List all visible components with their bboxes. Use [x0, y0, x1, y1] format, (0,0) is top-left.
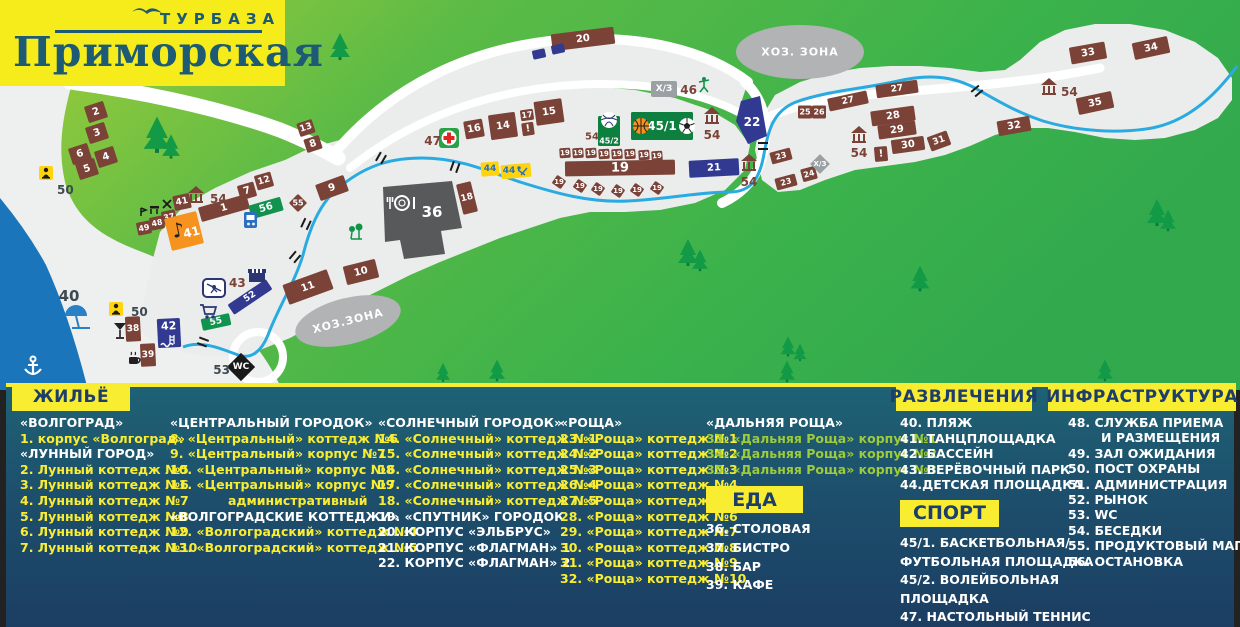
- svg-text:45/1: 45/1: [647, 119, 676, 133]
- svg-text:19: 19: [613, 187, 623, 195]
- legend-header-entertainment: РАЗВЛЕЧЕНИЯ: [896, 383, 1032, 411]
- building-19: 19: [624, 149, 636, 160]
- building-!: !: [874, 146, 888, 162]
- text40-icon: 40: [59, 287, 80, 305]
- building-16: 16: [463, 118, 485, 139]
- kids-icon: 44: [480, 161, 499, 177]
- legend-item: 44.ДЕТСКАЯ ПЛОЩАДКА: [900, 477, 1093, 493]
- svg-text:27: 27: [890, 83, 904, 95]
- svg-text:50: 50: [57, 183, 74, 197]
- svg-text:ХОЗ. ЗОНА: ХОЗ. ЗОНА: [761, 46, 839, 59]
- svg-text:42: 42: [161, 319, 177, 333]
- legend-item: 43. ВЕРЁВОЧНЫЙ ПАРК: [900, 462, 1093, 478]
- hozlabel-icon: Х/З: [651, 81, 677, 97]
- legend-item: 54. БЕСЕДКИ: [1068, 523, 1240, 538]
- svg-text:19: 19: [560, 149, 570, 158]
- legend-column-7: 48. СЛУЖБА ПРИЕМАИ РАЗМЕЩЕНИЯ49. ЗАЛ ОЖИ…: [1068, 415, 1240, 569]
- svg-text:Х/З: Х/З: [814, 160, 827, 168]
- svg-text:19: 19: [625, 150, 635, 159]
- legend-item: 51. АДМИНИСТРАЦИЯ: [1068, 477, 1240, 492]
- svg-text:14: 14: [495, 120, 510, 133]
- svg-text:Х/З: Х/З: [656, 84, 673, 94]
- svg-text:WC: WC: [233, 362, 250, 372]
- legend-header-infrastructure: ИНФРАСТРУКТУРА: [1048, 383, 1236, 411]
- svg-text:54: 54: [704, 128, 721, 142]
- svg-text:54: 54: [210, 192, 227, 206]
- svg-text:19: 19: [632, 186, 642, 194]
- building-19: 19: [585, 148, 597, 159]
- svg-text:19: 19: [612, 150, 622, 159]
- market-icon: [248, 269, 266, 282]
- svg-text:46: 46: [680, 83, 697, 97]
- building-42: 42: [157, 318, 181, 348]
- svg-text:19: 19: [639, 151, 649, 160]
- svg-text:19: 19: [652, 184, 662, 192]
- svg-text:50: 50: [131, 305, 148, 319]
- soccer-icon: [679, 118, 695, 134]
- guard-icon: [39, 166, 53, 180]
- building-19: 19: [572, 148, 584, 159]
- svg-text:29: 29: [889, 124, 904, 137]
- svg-text:55: 55: [292, 199, 304, 208]
- svg-text:28: 28: [885, 110, 900, 123]
- svg-text:!: !: [878, 148, 884, 159]
- svg-text:19: 19: [652, 152, 662, 161]
- svg-text:17: 17: [521, 110, 533, 120]
- building-25: 25: [798, 106, 812, 119]
- legend-item: 53. WC: [1068, 507, 1240, 522]
- cross-icon: [439, 128, 459, 148]
- building-17: 17: [520, 109, 534, 122]
- svg-text:36: 36: [422, 203, 443, 221]
- legend-item: 49. ЗАЛ ОЖИДАНИЯ: [1068, 446, 1240, 461]
- legend-box-food: ЕДА: [706, 486, 803, 513]
- volleyball-icon: [601, 112, 617, 128]
- legend-item: 52. РЫНОК: [1068, 492, 1240, 507]
- legend-item: 48. СЛУЖБА ПРИЕМА: [1068, 415, 1240, 430]
- building-26: 26: [812, 106, 826, 119]
- svg-text:54: 54: [851, 146, 868, 160]
- svg-text:53: 53: [213, 363, 230, 377]
- svg-text:38: 38: [126, 324, 139, 335]
- svg-text:20: 20: [575, 33, 590, 46]
- building-19: 19: [651, 151, 663, 162]
- building-19: 19: [638, 150, 650, 161]
- building-21: 21: [689, 158, 740, 178]
- logo: ТУРБАЗА Приморская: [0, 0, 285, 86]
- building-19: 19: [559, 148, 571, 159]
- legend-item: 50. ПОСТ ОХРАНЫ: [1068, 461, 1240, 476]
- svg-text:22: 22: [744, 115, 761, 129]
- building-14: 14: [488, 112, 518, 141]
- building-19: 19: [598, 149, 610, 160]
- svg-text:39: 39: [141, 350, 154, 361]
- svg-text:40: 40: [59, 287, 80, 305]
- seagull-icon: [130, 3, 164, 17]
- legend-item: 45/1. БАСКЕТБОЛЬНАЯ/: [900, 534, 1093, 553]
- svg-text:19: 19: [599, 150, 609, 159]
- legend-item: 40. ПЛЯЖ: [900, 415, 1093, 431]
- legend-item: 42. БАССЕЙН: [900, 446, 1093, 462]
- bus-icon: [244, 212, 257, 228]
- svg-text:54: 54: [1061, 85, 1078, 99]
- svg-text:44: 44: [484, 164, 497, 174]
- svg-text:19: 19: [611, 160, 629, 175]
- service-zone: ХОЗ. ЗОНА: [736, 25, 864, 79]
- svg-text:25: 25: [799, 108, 811, 117]
- building-19: 19: [565, 160, 675, 177]
- building-!: !: [521, 122, 535, 137]
- svg-text:54: 54: [585, 132, 599, 143]
- legend-item: ФУТБОЛЬНАЯ ПЛОЩАДКА: [900, 553, 1093, 572]
- legend-item: И РАЗМЕЩЕНИЯ: [1068, 430, 1240, 445]
- text54-icon: 54: [585, 132, 599, 143]
- legend-item: 41. ТАНЦПЛОЩАДКА: [900, 431, 1093, 447]
- legend-item: 55. ПРОДУКТОВЫЙ МАГАЗИН: [1068, 538, 1240, 553]
- basketball-icon: [633, 118, 649, 134]
- svg-text:19: 19: [593, 185, 603, 193]
- svg-text:19: 19: [554, 178, 564, 186]
- guard-icon: [109, 302, 123, 316]
- svg-text:26: 26: [813, 108, 825, 117]
- svg-text:30: 30: [900, 139, 915, 152]
- svg-text:44: 44: [503, 166, 516, 176]
- svg-text:19: 19: [573, 149, 583, 158]
- legend-item: ПЛОЩАДКА: [900, 590, 1093, 609]
- legend-column-6: 40. ПЛЯЖ41. ТАНЦПЛОЩАДКА42. БАССЕЙН43. В…: [900, 415, 1093, 627]
- svg-text:21: 21: [707, 162, 722, 174]
- legend-box-sport: СПОРТ: [900, 500, 999, 527]
- legend-item: 45/2. ВОЛЕЙБОЛЬНАЯ: [900, 571, 1093, 590]
- svg-text:19: 19: [575, 182, 585, 190]
- building-39: 39: [140, 343, 156, 367]
- logo-subtitle: ТУРБАЗА: [160, 10, 280, 28]
- legend-header-housing: ЖИЛЬЁ: [12, 383, 130, 411]
- legend-item: 56. ОСТАНОВКА: [1068, 554, 1240, 569]
- building-19: 19: [611, 149, 623, 160]
- svg-text:45/2: 45/2: [599, 137, 619, 146]
- svg-text:43: 43: [229, 276, 246, 290]
- kids2-icon: 44: [500, 163, 531, 180]
- logo-title: Приморская: [13, 28, 324, 76]
- svg-text:19: 19: [586, 149, 596, 158]
- svg-text:47: 47: [424, 134, 441, 148]
- legend-item: 47. НАСТОЛЬНЫЙ ТЕННИС: [900, 608, 1093, 627]
- svg-text:54: 54: [741, 175, 758, 189]
- building-38: 38: [125, 316, 141, 342]
- svg-text:15: 15: [541, 106, 556, 119]
- building-15: 15: [533, 98, 564, 126]
- rope-icon: [203, 279, 225, 297]
- resort-map-poster: ХОЗ. ЗОНАХОЗ.ЗОНА23654494837414117125655…: [0, 0, 1240, 627]
